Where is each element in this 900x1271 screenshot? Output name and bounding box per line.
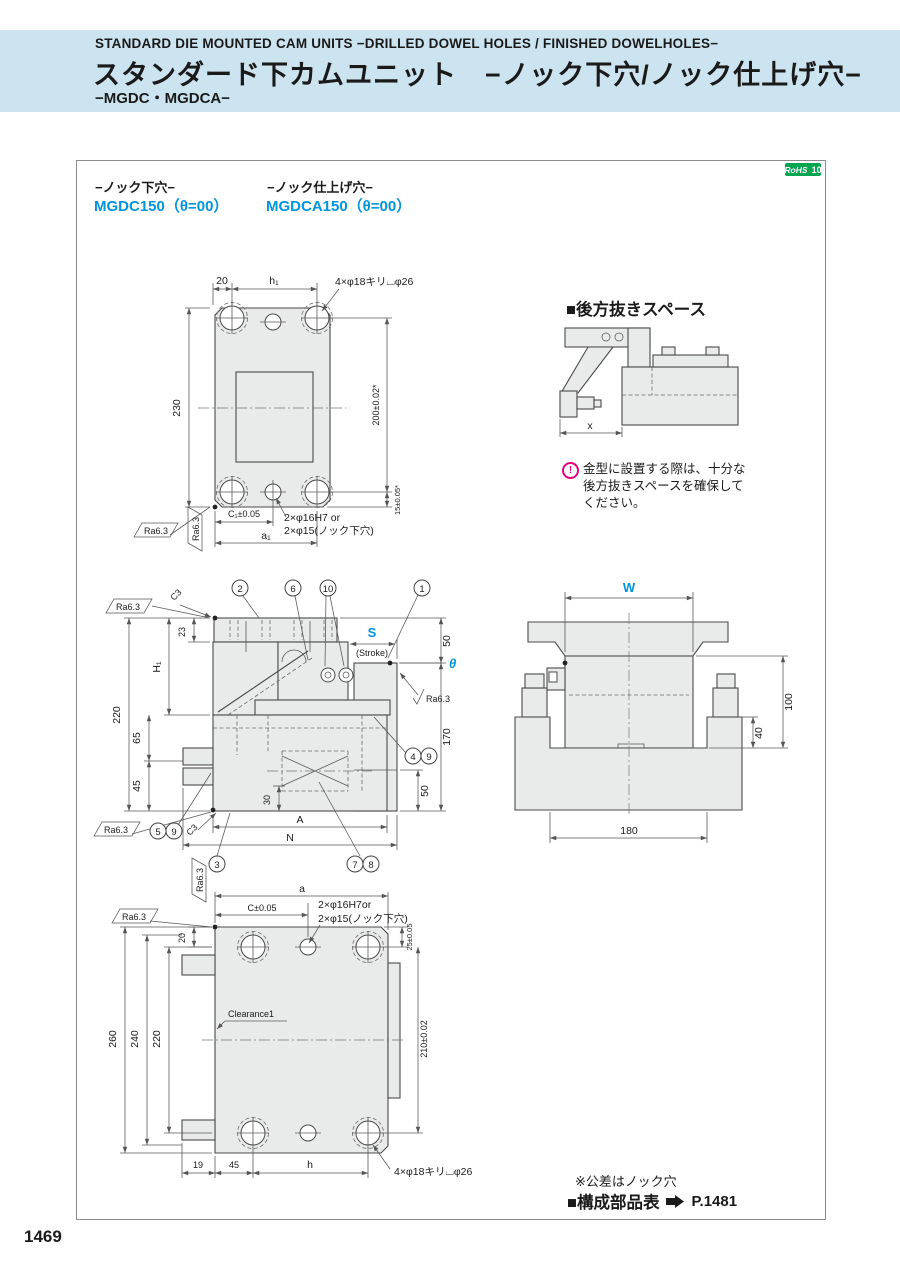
dim-20: 20: [216, 275, 228, 287]
pointer-icon: [666, 1195, 684, 1208]
theta-label: θ: [449, 656, 456, 671]
header-series: −MGDC・MGDCA−: [95, 87, 230, 108]
svg-text:1: 1: [419, 584, 424, 595]
dim-260: 260: [107, 1030, 119, 1048]
svg-text:Ra6.3: Ra6.3: [104, 825, 128, 835]
dim-23: 23: [177, 627, 187, 637]
svg-text:Ra6.3: Ra6.3: [122, 912, 146, 922]
dowel-callout-1: 2×φ16H7 or: [284, 512, 341, 524]
dim-15: 15±0.05*: [393, 485, 402, 515]
svg-text:Ra6.3: Ra6.3: [195, 868, 205, 892]
dim-50-bottom: 50: [419, 785, 431, 797]
side-top-plate: [528, 622, 728, 656]
svg-text:Ra6.3: Ra6.3: [116, 602, 140, 612]
dim-W: W: [623, 580, 636, 595]
datum-dot: [213, 505, 218, 510]
spring: [339, 668, 353, 682]
datum-dot: [211, 808, 216, 813]
dim-50-top: 50: [441, 635, 453, 647]
dim-30: 30: [262, 795, 272, 805]
dim-h: h: [307, 1159, 313, 1171]
dim-200: 200±0.02*: [371, 384, 381, 425]
bottom-view: Clearance1 a C±0.05 2×φ16H7or 2×φ15(ノック下…: [107, 858, 473, 1178]
dowel-callout-2: 2×φ15(ノック下穴): [284, 524, 374, 537]
dim-230: 230: [171, 399, 183, 417]
header-title-en: STANDARD DIE MOUNTED CAM UNITS −DRILLED …: [95, 36, 718, 51]
svg-text:9: 9: [171, 827, 176, 838]
svg-text:8: 8: [368, 860, 373, 871]
datum-dot: [213, 616, 218, 621]
balloon-3: 3: [209, 813, 230, 872]
clearance-label: Clearance1: [228, 1009, 274, 1019]
dim-170: 170: [441, 728, 453, 746]
callout-counterbore-top: 4×φ18キリ⌴φ26: [335, 276, 414, 288]
dim-S: S: [368, 625, 377, 640]
dim-c1: C₁±0.05: [228, 509, 260, 519]
surface-finish-flag: Ra6.3: [112, 909, 212, 927]
svg-text:Ra6.3: Ra6.3: [144, 526, 168, 536]
technical-drawings: 20 h₁ 4×φ18キリ⌴φ26 230 200±0.02* 15±0.05*…: [72, 155, 858, 1225]
dim-N: N: [286, 832, 294, 844]
dim-210: 210±0.02: [419, 1020, 429, 1057]
dim-a1: a₁: [261, 530, 271, 542]
back-space-diagram: x: [560, 328, 738, 437]
callout-counterbore-bottom: 4×φ18キリ⌴φ26: [394, 1166, 473, 1178]
dim-45: 45: [229, 1160, 239, 1170]
page-number: 1469: [24, 1227, 62, 1247]
spring: [321, 668, 335, 682]
surface-finish-flag: Ra6.3: [192, 858, 206, 902]
svg-text:7: 7: [352, 860, 357, 871]
svg-text:4: 4: [410, 752, 415, 763]
holder-base: [213, 715, 387, 811]
surface-finish-flag: Ra6.3: [188, 507, 202, 551]
dim-25: 25±0.05: [405, 923, 414, 950]
balloon-2: 2: [232, 580, 259, 618]
svg-text:10: 10: [323, 584, 334, 595]
dim-40: 40: [753, 727, 765, 739]
dim-x: x: [587, 420, 593, 432]
dim-h1: h₁: [269, 275, 279, 287]
svg-text:6: 6: [290, 584, 295, 595]
surface-finish-right: Ra6.3: [426, 694, 450, 704]
chamfer-C3-bottom: C3: [184, 822, 199, 837]
dim-a: a: [299, 883, 305, 895]
dowel-callout-1: 2×φ16H7or: [318, 899, 372, 911]
dim-240: 240: [129, 1030, 141, 1048]
balloon-1: 1: [388, 580, 430, 658]
top-view: 20 h₁ 4×φ18キリ⌴φ26 230 200±0.02* 15±0.05*…: [134, 275, 414, 551]
datum-dot: [388, 661, 393, 666]
dim-220: 220: [151, 1030, 163, 1048]
dowel-callout-2: 2×φ15(ノック下穴): [318, 912, 408, 925]
svg-text:9: 9: [426, 752, 431, 763]
cam-slider: [278, 642, 348, 700]
top-plate: [214, 618, 337, 642]
die-block: [622, 367, 738, 425]
datum-dot: [563, 661, 568, 666]
dim-65: 65: [131, 732, 143, 744]
tolerance-note: ※公差はノック穴: [575, 1171, 677, 1190]
guide-rail: [255, 700, 390, 715]
front-view: 23 H₁ 220 65 45 S (Stroke) 50 170: [94, 580, 456, 872]
side-view: W 100 40 180: [515, 580, 795, 843]
svg-text:2: 2: [237, 584, 242, 595]
dim-20: 20: [177, 933, 187, 943]
stroke-label: (Stroke): [356, 648, 388, 658]
surface-finish-flag: Ra6.3: [106, 599, 210, 618]
dim-45: 45: [131, 780, 143, 792]
chamfer-C3-top: C3: [168, 587, 183, 602]
dim-H1: H₁: [151, 661, 163, 673]
dim-c: C±0.05: [248, 903, 277, 913]
dim-180: 180: [620, 825, 638, 837]
dim-220: 220: [111, 706, 123, 724]
dim-100: 100: [783, 693, 795, 711]
svg-text:Ra6.3: Ra6.3: [191, 517, 201, 541]
dim-19: 19: [193, 1160, 203, 1170]
datum-dot: [213, 925, 218, 930]
parts-table-page-ref: P.1481: [691, 1193, 737, 1210]
svg-text:3: 3: [214, 860, 219, 871]
parts-table-row: ■構成部品表 P.1481: [567, 1189, 737, 1213]
dim-A: A: [296, 814, 303, 826]
svg-text:5: 5: [155, 827, 160, 838]
catalog-page: STANDARD DIE MOUNTED CAM UNITS −DRILLED …: [0, 0, 900, 1271]
parts-table-label: ■構成部品表: [567, 1189, 659, 1213]
